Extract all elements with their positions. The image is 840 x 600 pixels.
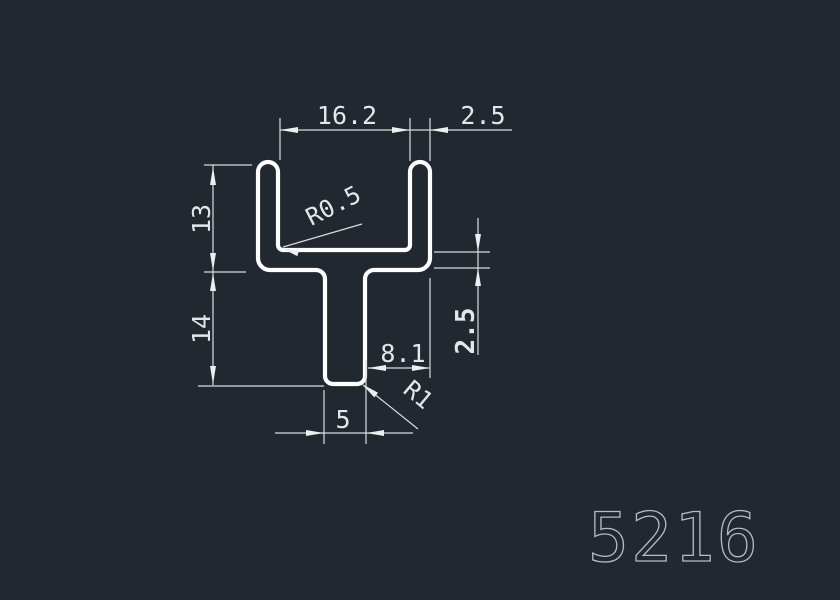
dim-channel-depth-label: 13 <box>187 204 216 234</box>
cad-viewport[interactable]: 16.2 2.5 13 14 2.5 8.1 5 R0.5 R1 5216 <box>0 0 840 600</box>
dim-web-thickness-label: 2.5 <box>451 308 481 355</box>
cad-drawing-canvas[interactable]: 16.2 2.5 13 14 2.5 8.1 5 R0.5 R1 5216 <box>0 0 840 600</box>
dim-stem-offset-label: 8.1 <box>380 339 425 368</box>
dim-stem-width-label: 5 <box>335 405 350 434</box>
part-number-label: 5216 <box>588 499 760 578</box>
dim-inner-width-label: 16.2 <box>317 101 377 130</box>
dim-wall-thickness-label: 2.5 <box>460 101 505 130</box>
dim-stem-height-label: 14 <box>187 314 216 344</box>
